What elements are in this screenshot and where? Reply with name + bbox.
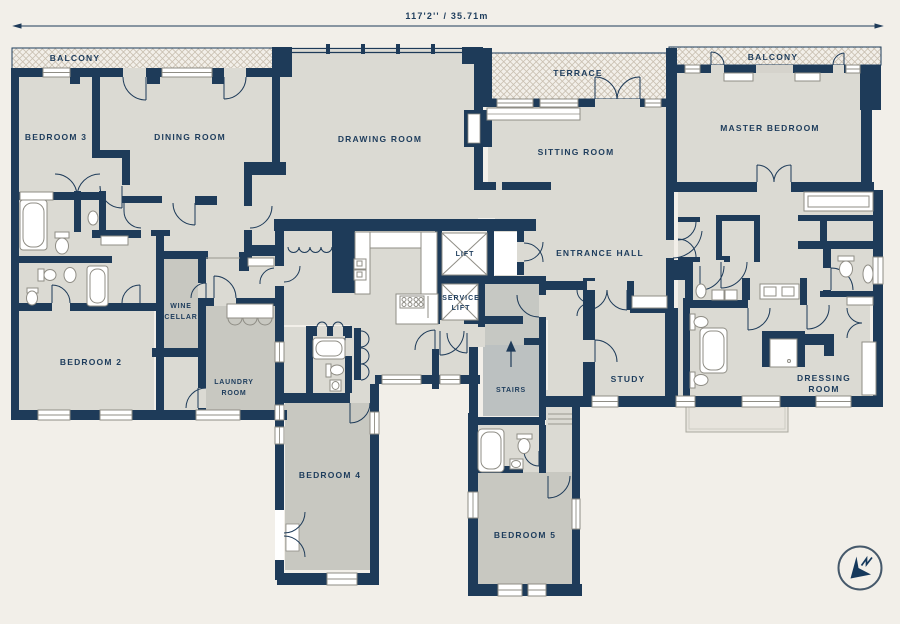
svg-text:STUDY: STUDY: [611, 374, 646, 384]
svg-text:117'2'' / 35.71m: 117'2'' / 35.71m: [405, 11, 488, 21]
svg-text:WINE: WINE: [170, 303, 191, 310]
svg-text:DINING ROOM: DINING ROOM: [154, 132, 226, 142]
svg-text:MASTER BEDROOM: MASTER BEDROOM: [720, 123, 819, 133]
svg-text:LIFT: LIFT: [452, 305, 471, 312]
svg-text:BEDROOM 5: BEDROOM 5: [494, 530, 556, 540]
svg-text:BALCONY: BALCONY: [50, 53, 100, 63]
svg-text:LAUNDRY: LAUNDRY: [214, 379, 254, 386]
svg-text:SERVICE: SERVICE: [442, 295, 480, 302]
svg-text:BEDROOM 4: BEDROOM 4: [299, 470, 361, 480]
svg-text:TERRACE: TERRACE: [553, 68, 603, 78]
svg-text:LIFT: LIFT: [456, 251, 475, 258]
svg-text:SITTING ROOM: SITTING ROOM: [538, 147, 615, 157]
svg-text:STAIRS: STAIRS: [496, 387, 526, 394]
svg-text:DRAWING ROOM: DRAWING ROOM: [338, 134, 422, 144]
svg-text:CELLAR: CELLAR: [164, 314, 197, 321]
svg-text:BEDROOM 3: BEDROOM 3: [25, 132, 87, 142]
svg-text:ENTRANCE HALL: ENTRANCE HALL: [556, 248, 644, 258]
svg-text:DRESSING: DRESSING: [797, 373, 851, 383]
svg-text:ROOM: ROOM: [222, 390, 247, 397]
svg-text:BEDROOM 2: BEDROOM 2: [60, 357, 122, 367]
svg-text:BALCONY: BALCONY: [748, 52, 798, 62]
svg-text:ROOM: ROOM: [808, 384, 839, 394]
